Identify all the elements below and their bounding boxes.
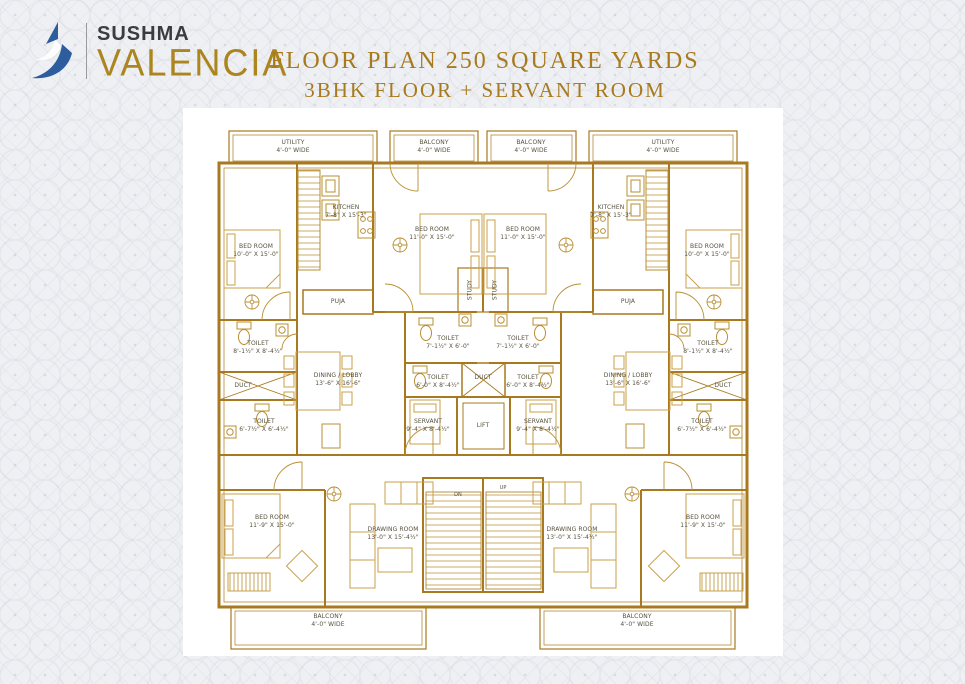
- label-servant-left: SERVANT9'-4" X 8'-4½": [406, 418, 450, 433]
- label-balcony-bottom-left: BALCONY4'-0" WIDE: [311, 613, 344, 628]
- label-bedroom-bottom-right: BED ROOM11'-9" X 15'-0": [680, 514, 725, 529]
- label-stairs-up: UP: [500, 485, 507, 493]
- header: SUSHMA VALENCIA FLOOR PLAN 250 SQUARE YA…: [0, 0, 965, 110]
- label-balcony-top-right: BALCONY4'-0" WIDE: [514, 139, 547, 154]
- label-lift: LIFT: [477, 422, 490, 430]
- label-kitchen-right: KITCHEN7'-8" X 15'-3": [590, 204, 632, 219]
- label-balcony-top-left: BALCONY4'-0" WIDE: [417, 139, 450, 154]
- label-duct-right: DUCT: [714, 382, 731, 390]
- label-study-left: STUDY: [466, 280, 474, 300]
- label-toilet-center-left: TOILET6'-0" X 8'-4½": [416, 374, 460, 389]
- label-drawing-room-right: DRAWING ROOM13'-0" X 15'-4½": [546, 526, 597, 541]
- label-study-right: STUDY: [491, 280, 499, 300]
- label-puja-left: PUJA: [331, 298, 345, 306]
- label-toilet-ensuite-left: TOILET8'-1½" X 8'-4½": [233, 340, 282, 355]
- label-drawing-room-left: DRAWING ROOM13'-0" X 15'-4½": [367, 526, 418, 541]
- label-toilet-small-left: TOILET6'-7½" X 6'-4½": [239, 418, 288, 433]
- label-toilet-center-right: TOILET6'-0" X 8'-4½": [506, 374, 550, 389]
- label-servant-right: SERVANT9'-4" X 8'-4½": [516, 418, 560, 433]
- staircase: [423, 478, 543, 592]
- label-utility-left: UTILITY4'-0" WIDE: [276, 139, 309, 154]
- label-toilet-ensuite-right: TOILET8'-1½" X 8'-4½": [683, 340, 732, 355]
- brand-block: SUSHMA VALENCIA: [28, 20, 288, 82]
- label-stairs-dn: DN: [454, 492, 462, 500]
- label-toilet-common-left: TOILET7'-1½" X 6'-0": [426, 335, 470, 350]
- label-dining-right: DINING / LOBBY13'-6" X 16'-6": [604, 372, 652, 387]
- brand-divider: [86, 23, 87, 79]
- label-bedroom-top-mid-left: BED ROOM11'-0" X 15'-0": [409, 226, 454, 241]
- label-puja-right: PUJA: [621, 298, 635, 306]
- label-bedroom-top-mid-right: BED ROOM11'-0" X 15'-0": [500, 226, 545, 241]
- label-dining-left: DINING / LOBBY13'-6" X 16'-6": [314, 372, 362, 387]
- label-balcony-bottom-right: BALCONY4'-0" WIDE: [620, 613, 653, 628]
- label-kitchen-left: KITCHEN7'-8" X 15'-3": [325, 204, 367, 219]
- label-toilet-common-right: TOILET7'-1½" X 6'-0": [496, 335, 540, 350]
- label-bedroom-top-far-left: BED ROOM10'-0" X 15'-0": [233, 243, 278, 258]
- title-line-2: 3BHK FLOOR + SERVANT ROOM: [255, 78, 715, 103]
- label-duct-center: DUCT: [474, 374, 491, 382]
- title-line-1: FLOOR PLAN 250 SQUARE YARDS: [255, 48, 715, 75]
- label-duct-left: DUCT: [234, 382, 251, 390]
- label-bedroom-bottom-left: BED ROOM11'-9" X 15'-0": [249, 514, 294, 529]
- label-toilet-small-right: TOILET6'-7½" X 6'-4½": [677, 418, 726, 433]
- label-bedroom-top-far-right: BED ROOM10'-0" X 15'-0": [684, 243, 729, 258]
- sushma-logo-icon: [28, 20, 80, 82]
- label-utility-right: UTILITY4'-0" WIDE: [646, 139, 679, 154]
- plan-title: FLOOR PLAN 250 SQUARE YARDS 3BHK FLOOR +…: [255, 48, 715, 103]
